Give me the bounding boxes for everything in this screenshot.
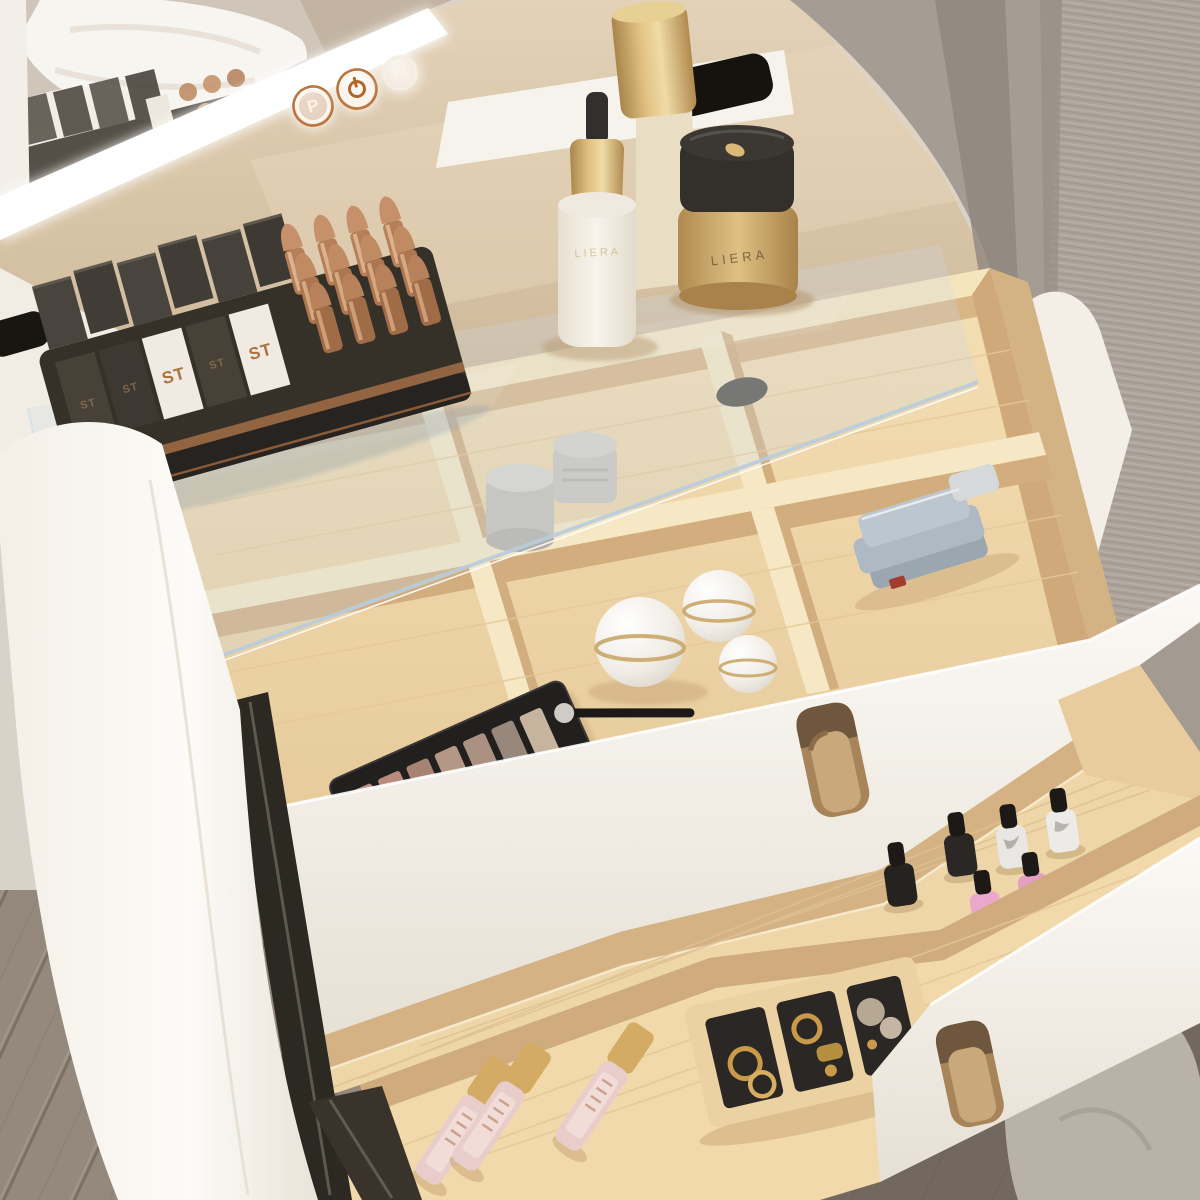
dropper-top xyxy=(586,92,608,144)
vanity-photo-scene: P M xyxy=(0,0,1200,1200)
cream-jar: LIERA xyxy=(678,125,798,310)
ball-jar-medium xyxy=(683,570,755,642)
serum-body xyxy=(558,205,636,347)
cream-jar-bottom xyxy=(679,282,797,310)
serum-brand-label: LIERA xyxy=(574,246,621,260)
ball-jar-large xyxy=(595,597,685,687)
serum-shoulder xyxy=(558,192,636,218)
